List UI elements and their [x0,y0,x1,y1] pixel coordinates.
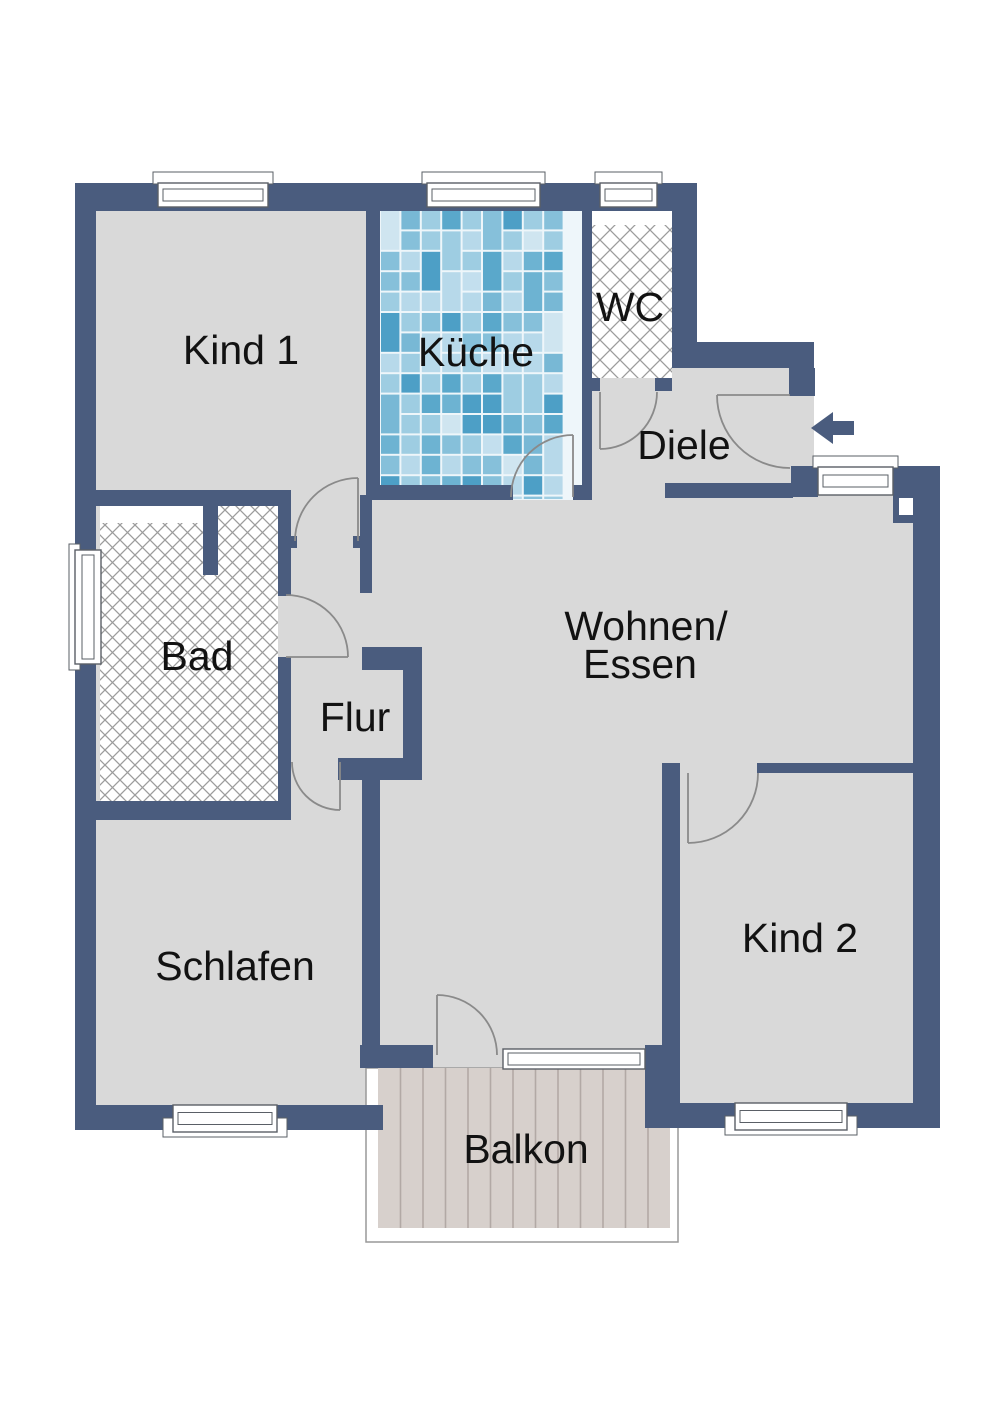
tile [463,456,481,474]
tile [463,435,481,453]
window-frame [75,550,101,664]
tile [544,374,562,392]
room-label-wc: WC [596,284,664,330]
tile [524,415,542,433]
room-label-schlafen: Schlafen [155,943,315,989]
tile [442,272,460,311]
tile [503,252,521,270]
tile [463,415,481,433]
tile [463,272,481,290]
tile [442,415,460,433]
tile [401,272,419,290]
tile [422,415,440,433]
tile [422,374,440,392]
window-frame [600,183,657,207]
tile [463,293,481,311]
tile [422,231,440,249]
tile [544,313,562,352]
bad-shelf [100,505,203,523]
room-label-kind1: Kind 1 [183,327,299,373]
tile [544,497,562,499]
tile [544,415,562,433]
wall-flur-nook-bottom [338,758,422,780]
wall-kind2-bottom-right [847,1103,940,1128]
wc-window [595,172,662,207]
balkon-fixed-glazing [503,1049,645,1069]
wall-divider-lower [360,495,372,593]
tile [401,252,419,270]
wall-kind2-block [645,1045,680,1103]
tile [503,272,521,290]
tile [524,456,542,474]
wall-kind2-top [757,763,913,773]
wall-bad-right-lower [278,657,291,804]
wall-kind2-bottom-left [645,1103,736,1128]
tile [544,293,562,311]
shaft-right-corner [899,498,913,515]
wall-diele-top [672,342,814,368]
tile [381,252,399,270]
schlafen-window [163,1105,287,1137]
tile [422,435,440,453]
tile [401,415,419,433]
tile [442,231,460,270]
tile [544,476,562,494]
tile [544,211,562,229]
window-frame [427,183,540,207]
tile [401,456,419,474]
floorplan-page: Kind 1KücheWCDieleWohnen/EssenBadFlurSch… [0,0,1000,1415]
tile [483,456,501,474]
room-label-diele: Diele [637,422,730,468]
room-label-kueche: Küche [418,329,534,375]
window-frame [158,183,268,207]
wall-bad-right-upper [278,490,291,596]
wall-divider-kueche-wc [582,203,592,500]
tile [483,374,501,392]
tile [381,293,399,311]
wall-schlafen-right [362,780,380,1068]
tile [503,415,521,433]
tile [401,395,419,413]
wc-shelf [592,210,672,225]
tile [524,272,542,311]
tile [442,211,460,229]
window-frame [503,1049,645,1069]
room-label-wohnen-line2: Essen [583,641,697,687]
tile [381,435,399,453]
tile [442,374,460,392]
room-label-flur: Flur [320,694,391,740]
tile [483,293,501,311]
wall-entry-jamb-bottom [791,466,818,497]
tile [483,395,501,413]
tile [524,497,542,499]
tile [524,211,542,229]
tile [401,231,419,249]
kind1-window [153,172,273,207]
wall-divider-kind1-kueche [366,203,380,496]
tile [422,293,440,311]
wall-wc-right [672,203,697,348]
tile [524,252,542,270]
room-label-balkon: Balkon [463,1126,588,1172]
window-frame [735,1103,847,1130]
tile [381,456,399,474]
tile [503,374,521,413]
wall-wc-bottom-left [588,378,600,391]
window-sill [813,456,898,468]
tile [422,456,440,474]
tile [442,435,460,453]
tile [381,272,399,290]
tile [483,415,501,433]
tile [483,435,501,453]
tile [524,231,542,249]
tile [463,395,481,413]
tile [503,231,521,249]
wohnen-east-window [813,456,898,495]
floorplan-drawing: Kind 1KücheWCDieleWohnen/EssenBadFlurSch… [0,0,1000,1415]
window-sill [153,172,273,184]
tile [544,272,562,290]
kind2-window [725,1103,857,1135]
tile [544,231,562,249]
window-frame [173,1105,277,1132]
tile [381,211,399,250]
wall-kueche-jamb [573,485,582,500]
tile [381,313,399,352]
tile [524,476,542,494]
room-label-kind2: Kind 2 [742,915,858,961]
tile [381,395,399,434]
tile [422,211,440,229]
wall-ext-right [913,466,940,1128]
wall-wc-bottom-right [655,378,672,391]
tile [463,211,481,229]
tile [381,354,399,372]
tile [544,354,562,372]
wall-wohnen-balkon-left [360,1045,433,1068]
wall-kind1-bottom [95,490,291,506]
wall-schlafen-bottom-right [277,1105,383,1130]
window-frame [818,467,893,495]
tile [503,211,521,229]
tile [503,293,521,311]
wall-doorstop-flur-right [353,536,361,548]
tile [483,211,501,250]
wall-schlafen-bottom-left [75,1105,174,1130]
kueche-window [422,172,545,207]
wall-bad-stub [203,505,218,575]
window-sill [422,172,545,184]
tile [401,435,419,453]
room-label-bad: Bad [161,633,234,679]
wall-kind2-left [662,763,680,1047]
tile [442,456,460,474]
wall-bad-bottom [95,801,291,820]
tile [483,252,501,291]
tile [463,231,481,249]
tile [401,374,419,392]
tile [544,252,562,270]
tile [422,252,440,291]
wall-kueche-bottom [366,485,513,500]
wall-entry-jamb-top [789,368,815,396]
wall-flur-nook-right [403,670,422,758]
tile [463,252,481,270]
wall-diele-bottom [665,483,793,498]
window-sill [595,172,662,184]
tile [524,374,542,413]
wall-flur-nook-top [362,647,422,670]
tile [401,293,419,311]
tile [401,211,419,229]
bad-window [69,544,101,670]
tile [544,395,562,413]
tile [381,374,399,392]
tile [463,374,481,392]
tile [442,395,460,413]
tile [422,395,440,413]
tile [503,435,521,453]
